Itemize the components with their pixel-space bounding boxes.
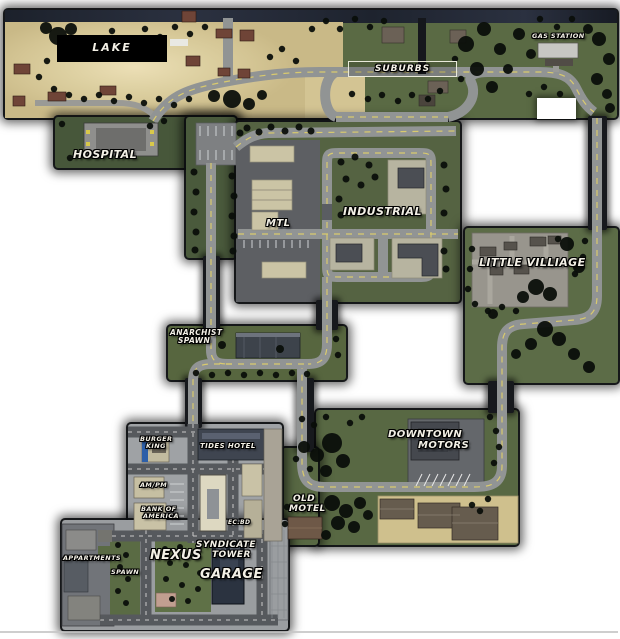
label-appartments: APPARTMENTS xyxy=(63,555,121,562)
label-downtown-motors: DOWNTOWN MOTORS xyxy=(388,429,469,451)
mtl-warehouses xyxy=(250,146,306,278)
label-spawn: SPAWN xyxy=(111,569,139,576)
label-ec-bd: EC.BD xyxy=(228,520,250,527)
label-lake: LAKE xyxy=(92,42,132,54)
label-am-pm: AM/PM xyxy=(140,482,167,489)
label-garage: GARAGE xyxy=(200,568,263,583)
label-burger-king: BURGER KING xyxy=(140,436,172,451)
lake-label-box: LAKE xyxy=(57,35,167,62)
label-nexus: NEXUS xyxy=(150,549,202,564)
map-overlay xyxy=(0,0,620,639)
label-mtl: MTL xyxy=(266,218,290,229)
ground-pads-layer xyxy=(62,123,568,626)
label-little-villiage: LITTLE VILLIAGE xyxy=(479,257,586,269)
label-tides-hotel: TIDES HOTEL xyxy=(200,443,256,451)
label-anarchist-spawn: ANARCHIST SPAWN xyxy=(170,329,222,346)
gas-station-canopy xyxy=(538,43,578,58)
label-gas-station: GAS STATION xyxy=(532,33,585,40)
label-old-motel: OLD MOTEL xyxy=(289,494,326,514)
label-bank-of-america: BANK OF AMERICA xyxy=(141,506,179,521)
game-map: LAKE SUBURBS GAS STATION HOSPITAL MTL IN… xyxy=(0,0,620,639)
label-suburbs: SUBURBS xyxy=(375,64,430,74)
label-syndicate-tower: SYNDICATE TOWER xyxy=(196,540,256,560)
label-industrial: INDUSTRIAL xyxy=(343,206,422,218)
gas-station-building xyxy=(545,59,573,66)
label-hospital: HOSPITAL xyxy=(73,149,137,161)
suburbs-label-box: SUBURBS xyxy=(348,61,457,77)
